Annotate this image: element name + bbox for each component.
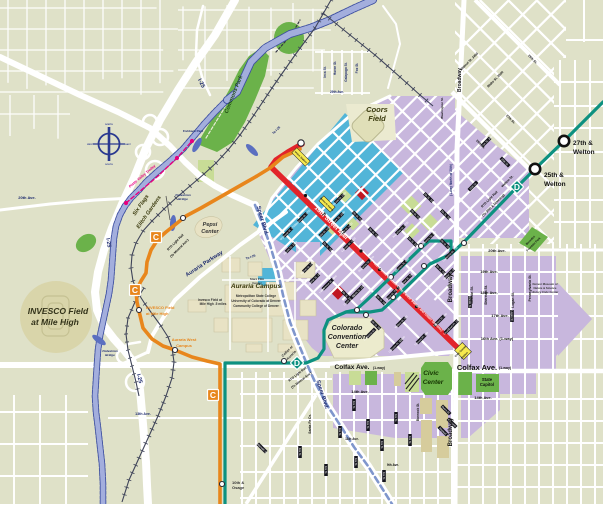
svg-text:D: D: [514, 182, 520, 192]
svg-text:(1-way North of 20th): (1-way North of 20th): [449, 164, 453, 196]
svg-text:D: D: [294, 358, 300, 368]
svg-text:Fox St.: Fox St.: [394, 414, 398, 422]
svg-text:at Mile High: at Mile High: [31, 317, 79, 327]
svg-text:Osage: Osage: [232, 485, 245, 490]
svg-text:Bannock St.: Bannock St.: [416, 403, 420, 422]
svg-text:C: C: [153, 232, 159, 242]
svg-text:C: C: [210, 390, 216, 400]
svg-text:Sherman St.: Sherman St.: [484, 285, 488, 305]
svg-text:Santa Fe Dr.: Santa Fe Dr.: [308, 414, 312, 434]
svg-text:Inca St.: Inca St.: [323, 66, 327, 77]
svg-text:Fox St.: Fox St.: [338, 428, 342, 436]
svg-text:Fox St.: Fox St.: [324, 466, 328, 474]
svg-text:14th Ave.: 14th Ave.: [351, 389, 369, 394]
svg-text:Campus: Campus: [176, 343, 193, 348]
svg-text:Bridge: Bridge: [178, 197, 188, 201]
svg-text:Center: Center: [252, 281, 262, 285]
svg-text:20th Ave.: 20th Ave.: [18, 195, 36, 200]
svg-text:Fishback Park: Fishback Park: [183, 129, 204, 133]
svg-text:at Mile High: at Mile High: [146, 311, 169, 316]
svg-text:History Civic Center: History Civic Center: [532, 290, 560, 294]
svg-text:Fox St.: Fox St.: [352, 401, 356, 409]
svg-text:Civic: Civic: [423, 370, 439, 377]
svg-text:C: C: [132, 285, 138, 295]
svg-text:Convention: Convention: [328, 334, 367, 341]
svg-text:11th Ave.: 11th Ave.: [345, 437, 359, 441]
svg-text:Metropolitan State College: Metropolitan State College: [236, 294, 276, 298]
svg-text:Broadway: Broadway: [457, 68, 463, 92]
svg-text:Galapago St.: Galapago St.: [344, 62, 348, 82]
svg-text:EAST: EAST: [125, 143, 131, 146]
svg-text:INVESCO Field: INVESCO Field: [146, 305, 175, 310]
svg-text:Fox St.: Fox St.: [298, 448, 302, 456]
svg-text:18th Ave.: 18th Ave.: [480, 290, 498, 295]
svg-text:Fox St.: Fox St.: [366, 421, 370, 429]
svg-text:Fox St.: Fox St.: [355, 63, 359, 74]
svg-text:Logan St.: Logan St.: [510, 310, 514, 321]
svg-text:27th &: 27th &: [573, 140, 593, 147]
svg-text:Fox St.: Fox St.: [354, 458, 358, 466]
svg-text:Pepsi: Pepsi: [203, 222, 218, 228]
svg-text:13th Ave.: 13th Ave.: [135, 412, 151, 416]
svg-text:Broadway: Broadway: [448, 273, 454, 302]
svg-text:(1-way): (1-way): [499, 366, 511, 370]
svg-text:16th Ave. (1-way): 16th Ave. (1-way): [481, 336, 514, 341]
svg-text:University of Colorado at Denv: University of Colorado at Denver: [231, 299, 281, 303]
svg-text:Lincoln St.: Lincoln St.: [470, 286, 474, 303]
svg-text:Capitol: Capitol: [480, 382, 494, 387]
svg-text:Logan St.: Logan St.: [511, 292, 515, 308]
svg-text:9th Ave.: 9th Ave.: [387, 463, 399, 467]
svg-text:SOUTH: SOUTH: [105, 164, 113, 166]
svg-text:INVESCO Field: INVESCO Field: [28, 306, 89, 316]
svg-text:(1-way): (1-way): [373, 366, 385, 370]
svg-text:Pennsylvania St.: Pennsylvania St.: [528, 274, 532, 301]
svg-text:Fox St.: Fox St.: [380, 441, 384, 449]
svg-text:19th Ave.: 19th Ave.: [480, 269, 498, 274]
svg-text:Bridge: Bridge: [105, 353, 115, 357]
svg-text:WEST: WEST: [87, 144, 94, 146]
svg-text:14th Ave.: 14th Ave.: [474, 395, 492, 400]
svg-text:Washington St.: Washington St.: [440, 97, 444, 119]
svg-text:Auraria West: Auraria West: [172, 337, 197, 342]
svg-text:Huron St.: Huron St.: [333, 61, 337, 75]
svg-text:Colfax Ave.: Colfax Ave.: [457, 363, 497, 372]
svg-text:17th Ave.: 17th Ave.: [491, 313, 509, 318]
svg-text:Fox St.: Fox St.: [408, 436, 412, 444]
svg-text:NORTH: NORTH: [105, 124, 113, 126]
svg-text:Broadway: Broadway: [448, 417, 454, 446]
svg-text:Welton: Welton: [573, 149, 595, 156]
svg-text:Colfax Ave.: Colfax Ave.: [335, 364, 370, 371]
svg-text:Center: Center: [336, 343, 359, 350]
svg-text:29th Ave.: 29th Ave.: [330, 90, 344, 94]
svg-text:25th &: 25th &: [544, 172, 564, 179]
svg-text:Welton: Welton: [544, 181, 566, 188]
svg-text:Field: Field: [368, 114, 386, 123]
svg-text:Mile High .5 miles: Mile High .5 miles: [200, 302, 227, 306]
svg-text:Colorado: Colorado: [332, 325, 363, 332]
svg-text:Center: Center: [201, 229, 219, 235]
svg-text:Fox St.: Fox St.: [382, 472, 386, 480]
svg-text:20th Ave.: 20th Ave.: [488, 248, 506, 253]
svg-text:Center: Center: [423, 379, 444, 386]
svg-text:Coors: Coors: [366, 105, 388, 114]
svg-text:Community College of Denver: Community College of Denver: [233, 304, 279, 308]
